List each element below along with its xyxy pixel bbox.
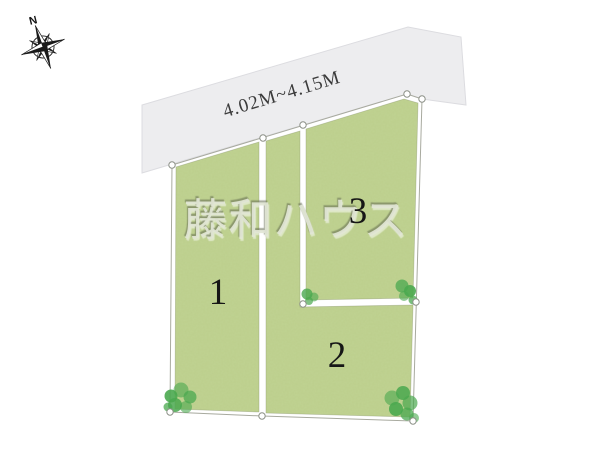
plot-2-number: 2 — [315, 332, 359, 380]
vertex-marker — [404, 91, 410, 97]
vertex-marker — [419, 96, 425, 102]
vertex-marker — [300, 301, 306, 307]
plot-3-number: 3 — [336, 188, 380, 236]
vertex-marker — [413, 299, 419, 305]
plot-1-number: 1 — [196, 269, 240, 317]
vertex-marker — [410, 418, 416, 424]
company-watermark: 藤和ハウス — [126, 197, 466, 247]
land-plot-map: N 4.02M~4.15M 藤和ハウス 1 2 3 — [0, 0, 600, 450]
vertex-marker — [300, 122, 306, 128]
vertex-marker — [260, 135, 266, 141]
vertex-marker — [169, 162, 175, 168]
compass-north-label: N — [28, 14, 39, 28]
compass-cardinal-points — [14, 18, 73, 77]
compass-rose: N — [14, 14, 73, 76]
vertex-marker — [167, 409, 173, 415]
vertex-marker — [259, 413, 265, 419]
